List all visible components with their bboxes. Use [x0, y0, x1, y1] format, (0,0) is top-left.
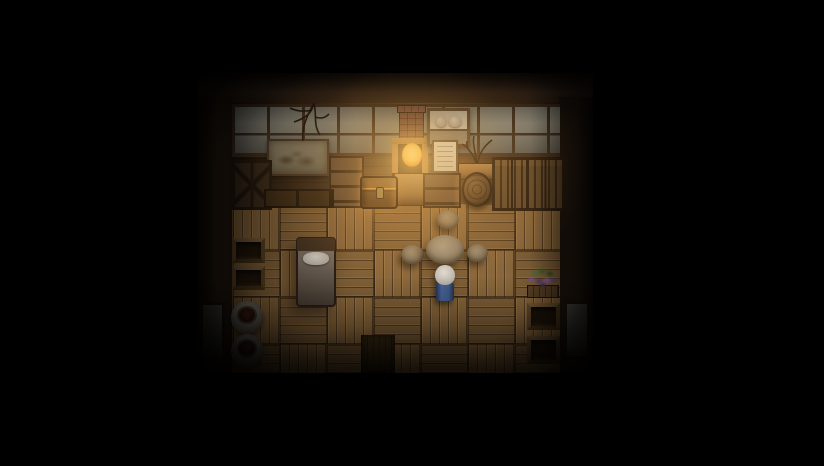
bed-pillow [303, 252, 328, 265]
storage-crate [527, 336, 560, 364]
wall-beam-top [198, 73, 593, 104]
bed-headboard [297, 238, 335, 251]
floor-tile [421, 344, 468, 373]
storage-crate [232, 238, 265, 263]
floor-tile [468, 344, 515, 373]
counter-drawers [264, 189, 334, 208]
floor-tile [421, 297, 468, 344]
drawer-chest-right [423, 173, 461, 208]
clay-jar [231, 334, 263, 368]
round-stool-top [437, 210, 459, 229]
drawer-chest-left [329, 156, 364, 208]
dead-branch-decor-top [286, 103, 332, 143]
floor-tile [468, 297, 515, 344]
game-viewport[interactable] [198, 73, 593, 373]
hanging-scroll-paper [432, 140, 458, 173]
treasure-chest[interactable] [360, 176, 398, 209]
entrance-mat [361, 335, 395, 373]
white-pot-icon [449, 116, 461, 127]
barrel [462, 172, 492, 207]
floor-tile [374, 203, 421, 250]
clay-jar [231, 301, 263, 334]
round-table [426, 235, 464, 264]
character-hair [435, 265, 454, 285]
storage-crate [527, 303, 560, 330]
wall-panel-right [564, 301, 590, 359]
white-pot-icon [436, 116, 446, 127]
stove-chimney [399, 106, 424, 141]
storage-crate [232, 266, 265, 290]
floor [232, 203, 560, 373]
bed [296, 237, 336, 307]
screen: { "meta": { "kind": "game-viewport", "de… [0, 0, 824, 466]
round-stool-right [467, 244, 488, 262]
wall-panel-left [200, 302, 225, 360]
plant-foliage [526, 266, 560, 298]
potted-grape-plant [526, 266, 560, 298]
round-stool-left [401, 245, 424, 264]
cabinet-right-2 [526, 157, 565, 211]
floor-tile [280, 344, 327, 373]
under-stove-cabinet [394, 173, 425, 206]
player-character[interactable] [434, 265, 456, 301]
branch-icon [286, 103, 332, 143]
stove-fire [402, 143, 422, 167]
landscape-painting [267, 139, 329, 176]
character-body [436, 282, 454, 301]
